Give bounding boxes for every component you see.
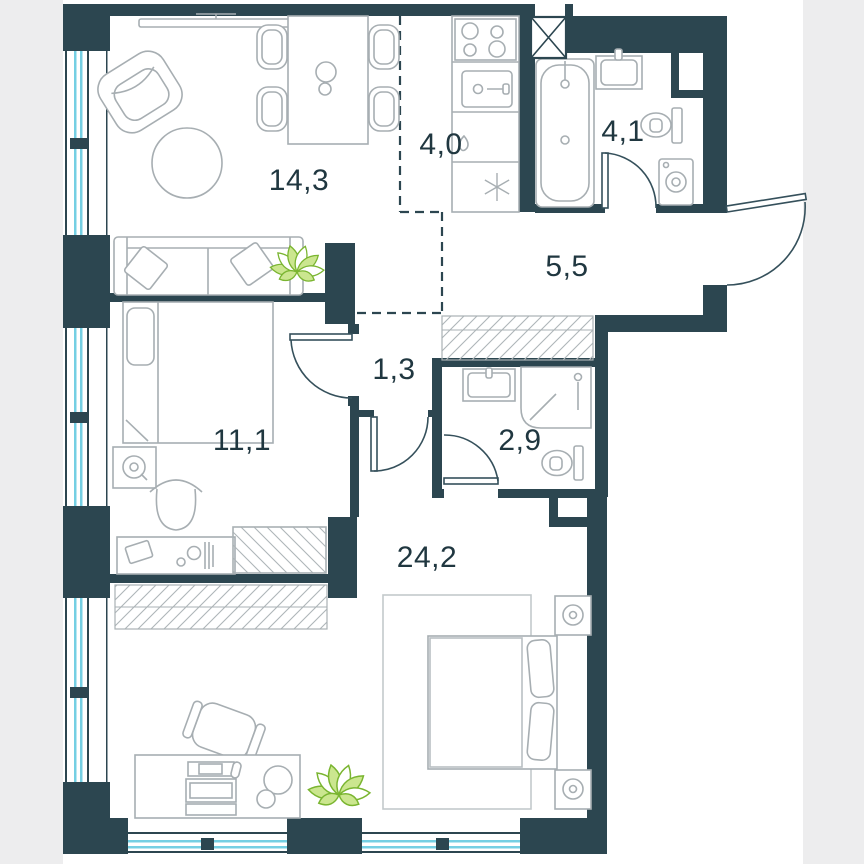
round-rug <box>152 128 222 198</box>
room-label-bathroom-main: 4,1 <box>601 115 644 148</box>
wall-segment <box>432 358 442 497</box>
nightstand <box>113 447 156 488</box>
window-mullion <box>436 838 449 850</box>
room-label-entrance-hall: 5,5 <box>545 250 588 283</box>
wall-segment <box>595 332 608 497</box>
double-bed <box>428 636 557 769</box>
window-frame <box>65 51 67 235</box>
wall-segment <box>103 818 128 854</box>
entrance-door-swing <box>727 202 805 285</box>
stove <box>455 19 516 60</box>
pillow <box>527 702 555 761</box>
bedroom-small-door <box>290 334 352 398</box>
door-swing <box>444 435 498 481</box>
entrance-door <box>726 194 806 285</box>
plant-icon <box>307 763 370 808</box>
hall-wardrobe <box>442 316 593 360</box>
dining-chair-seat <box>374 92 394 126</box>
laundry-niche <box>531 17 566 58</box>
dining-chair-seat <box>374 30 394 64</box>
bathroom-sink <box>463 368 515 401</box>
wall-segment <box>432 489 444 498</box>
entrance-door-leaf <box>726 194 806 212</box>
room-label-living-dining: 14,3 <box>269 164 329 197</box>
door-swing <box>291 340 352 398</box>
window-frame <box>362 851 520 853</box>
armchair <box>91 44 189 139</box>
wall-segment <box>110 4 530 16</box>
wall-segment <box>703 53 727 207</box>
room-label-inner-hall: 1,3 <box>372 353 415 386</box>
master-bedroom-door <box>371 417 428 471</box>
bathroom-second-door <box>444 435 498 484</box>
door-swing <box>374 417 428 471</box>
pillow <box>127 308 154 365</box>
wall-segment <box>348 324 359 334</box>
window-frame <box>128 851 287 853</box>
wall-segment <box>549 517 593 527</box>
pillow <box>527 639 555 698</box>
page-margin-left <box>0 0 63 864</box>
desk <box>135 755 300 818</box>
dining-chair-seat <box>262 92 282 126</box>
window-mullion <box>70 687 88 698</box>
floor-plan-page: 14,3 4,0 4,1 5,5 1,3 11,1 2,9 24,2 <box>0 0 864 864</box>
window-frame <box>106 328 108 506</box>
window-mullion <box>70 412 88 423</box>
window-mullion <box>70 138 88 149</box>
wall-segment <box>107 574 328 583</box>
washing-machine <box>659 159 693 205</box>
bathroom-main-door <box>602 153 656 208</box>
door-leaf <box>444 478 498 484</box>
nightstand <box>555 596 591 635</box>
window-mullion <box>201 838 214 850</box>
wall-segment <box>568 16 727 53</box>
window-frame <box>128 832 287 834</box>
wall-segment <box>498 489 595 498</box>
wall-segment <box>350 406 359 517</box>
wall-segment <box>63 506 110 598</box>
shower <box>521 367 591 428</box>
window-frame <box>65 328 67 506</box>
window-frame <box>106 598 108 782</box>
window-frame <box>65 598 67 782</box>
dresser <box>233 527 326 573</box>
nightstand <box>555 770 591 809</box>
wall-segment <box>328 517 357 598</box>
wall-segment <box>703 285 727 315</box>
toilet <box>542 446 583 480</box>
bathtub <box>536 59 594 207</box>
door-leaf <box>371 417 377 471</box>
wall-segment <box>595 315 727 332</box>
wall-segment <box>63 4 110 51</box>
room-label-bedroom-master: 24,2 <box>397 541 457 574</box>
bowl <box>319 83 331 95</box>
desk <box>117 537 235 574</box>
kitchen-fixtures <box>452 16 519 212</box>
single-bed <box>123 302 273 443</box>
door-leaf <box>602 153 608 208</box>
wall-segment <box>63 782 110 854</box>
page-margin-right <box>803 0 864 864</box>
dining-chair-seat <box>262 30 282 64</box>
wall-segment <box>287 818 362 854</box>
door-swing <box>605 153 656 208</box>
pouf-chair <box>150 480 202 530</box>
wall-segment <box>428 410 442 417</box>
room-label-bedroom-small: 11,1 <box>213 424 271 457</box>
floor-plan: 14,3 4,0 4,1 5,5 1,3 11,1 2,9 24,2 <box>0 0 864 864</box>
kitchen-sink <box>462 71 512 107</box>
room-label-bathroom-second: 2,9 <box>498 424 541 457</box>
window-frame <box>362 832 520 834</box>
room-label-kitchen: 4,0 <box>419 128 462 161</box>
dining-set <box>257 16 399 144</box>
wall-segment <box>63 235 110 328</box>
wall-segment <box>325 243 355 324</box>
door-leaf <box>290 334 352 340</box>
wall-segment <box>520 818 607 854</box>
bowl <box>316 62 336 82</box>
toilet <box>641 108 682 143</box>
bathroom-sink <box>596 49 642 89</box>
